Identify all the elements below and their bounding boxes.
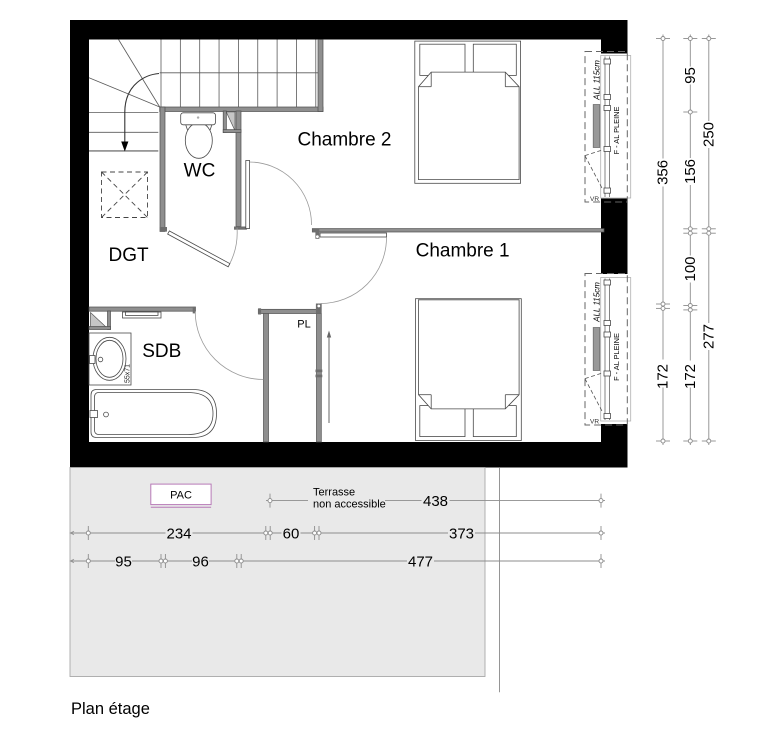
svg-text:VR: VR [590, 419, 599, 426]
svg-text:DGT: DGT [109, 245, 150, 266]
svg-text:PL: PL [297, 319, 310, 331]
svg-text:55x71: 55x71 [125, 364, 132, 383]
svg-text:WC: WC [184, 161, 216, 182]
svg-text:F - AL PLEINE: F - AL PLEINE [612, 107, 621, 155]
svg-text:156: 156 [682, 159, 699, 184]
svg-text:Chambre 1: Chambre 1 [416, 241, 510, 262]
svg-text:250: 250 [700, 122, 717, 147]
svg-text:234: 234 [166, 525, 191, 542]
svg-text:ALL 115cm: ALL 115cm [593, 282, 602, 323]
svg-text:172: 172 [682, 364, 699, 389]
svg-text:477: 477 [408, 553, 433, 570]
svg-text:356: 356 [655, 160, 672, 185]
svg-text:SDB: SDB [142, 341, 181, 362]
svg-text:Plan étage: Plan étage [71, 700, 150, 718]
svg-text:60: 60 [283, 525, 300, 542]
svg-text:373: 373 [449, 525, 474, 542]
svg-text:PAC: PAC [170, 490, 192, 502]
svg-text:VR: VR [590, 196, 599, 203]
svg-text:438: 438 [423, 493, 448, 510]
svg-text:ALL 115cm: ALL 115cm [593, 60, 602, 101]
svg-text:100: 100 [682, 256, 699, 281]
svg-text:277: 277 [700, 324, 717, 349]
svg-text:non accessible: non accessible [313, 499, 386, 511]
svg-text:F - AL PLEINE: F - AL PLEINE [612, 333, 621, 381]
svg-text:Terrasse: Terrasse [313, 487, 355, 499]
svg-text:95: 95 [682, 67, 699, 84]
svg-text:Chambre 2: Chambre 2 [298, 130, 392, 151]
svg-text:96: 96 [192, 553, 209, 570]
svg-text:95: 95 [115, 553, 132, 570]
svg-text:172: 172 [655, 364, 672, 389]
